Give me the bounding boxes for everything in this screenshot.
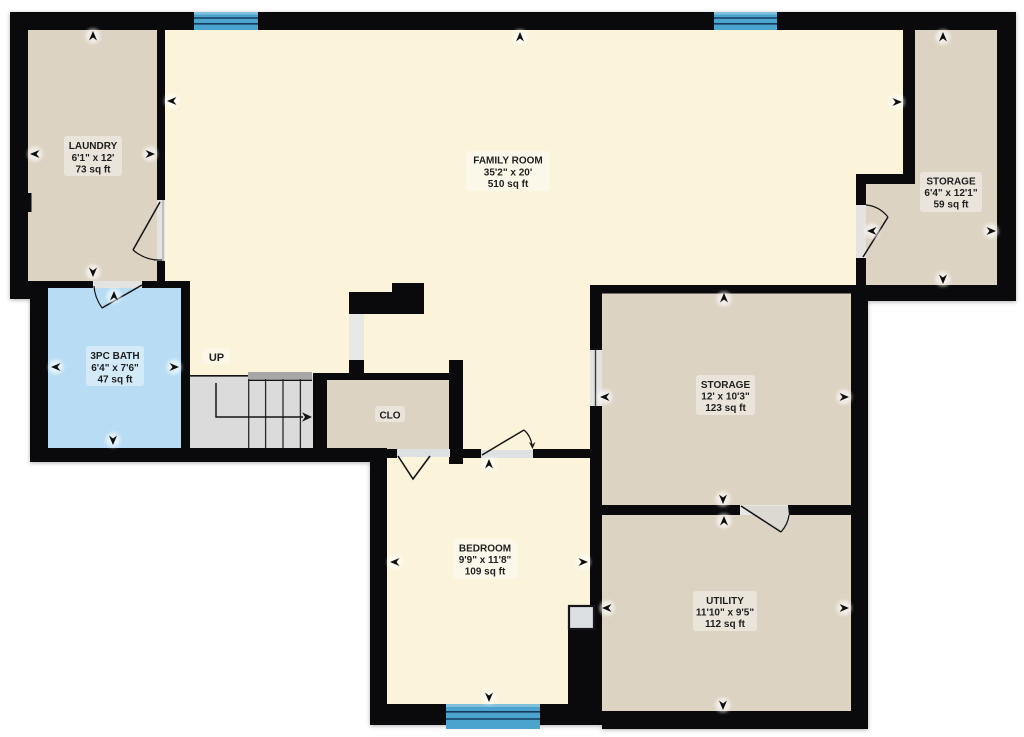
svg-text:510 sq ft: 510 sq ft [488,179,529,190]
svg-text:3PC BATH: 3PC BATH [90,351,139,362]
svg-text:BEDROOM: BEDROOM [459,544,511,555]
svg-text:STORAGE: STORAGE [701,380,751,391]
svg-text:6'4" x 7'6": 6'4" x 7'6" [91,363,139,374]
svg-text:UTILITY: UTILITY [706,596,744,607]
svg-text:35'2" x 20': 35'2" x 20' [484,168,532,179]
svg-text:112 sq ft: 112 sq ft [705,619,746,630]
svg-text:UP: UP [209,352,224,364]
svg-text:12' x 10'3": 12' x 10'3" [701,392,750,403]
svg-text:47 sq ft: 47 sq ft [97,375,133,386]
svg-text:73 sq ft: 73 sq ft [75,165,111,176]
svg-text:FAMILY ROOM: FAMILY ROOM [473,156,542,167]
svg-text:9'9" x 11'8": 9'9" x 11'8" [459,555,512,566]
svg-text:123 sq ft: 123 sq ft [705,403,746,414]
svg-text:59 sq ft: 59 sq ft [933,200,969,211]
svg-text:6'1" x 12': 6'1" x 12' [72,153,115,164]
svg-text:6'4" x 12'1": 6'4" x 12'1" [924,188,977,199]
svg-text:CLO: CLO [379,411,400,422]
svg-text:109 sq ft: 109 sq ft [465,567,506,578]
svg-text:11'10" x 9'5": 11'10" x 9'5" [696,608,754,619]
svg-text:STORAGE: STORAGE [926,177,976,188]
svg-text:LAUNDRY: LAUNDRY [69,141,118,152]
